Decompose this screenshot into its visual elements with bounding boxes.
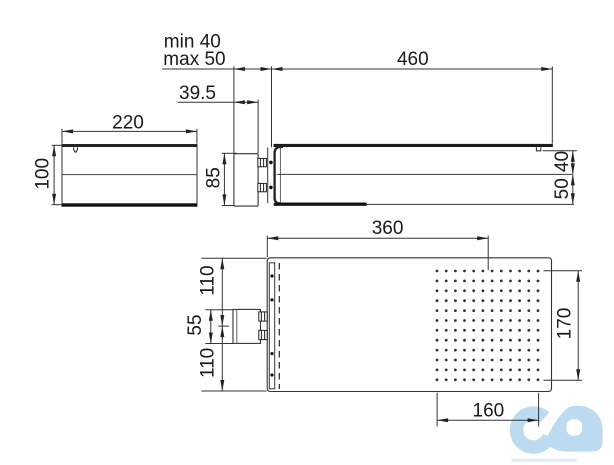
svg-text:39.5: 39.5 (179, 83, 216, 104)
svg-text:360: 360 (372, 218, 404, 239)
svg-text:50: 50 (552, 178, 573, 199)
svg-text:100: 100 (32, 158, 53, 190)
svg-text:220: 220 (112, 113, 144, 134)
svg-text:85: 85 (203, 167, 224, 188)
svg-text:110: 110 (198, 348, 219, 378)
svg-text:460: 460 (397, 49, 429, 70)
svg-text:55: 55 (185, 314, 206, 335)
svg-text:170: 170 (555, 308, 576, 340)
svg-text:40: 40 (552, 151, 573, 172)
svg-text:110: 110 (198, 265, 219, 295)
svg-text:max 50: max 50 (163, 49, 225, 70)
svg-text:160: 160 (473, 400, 505, 421)
